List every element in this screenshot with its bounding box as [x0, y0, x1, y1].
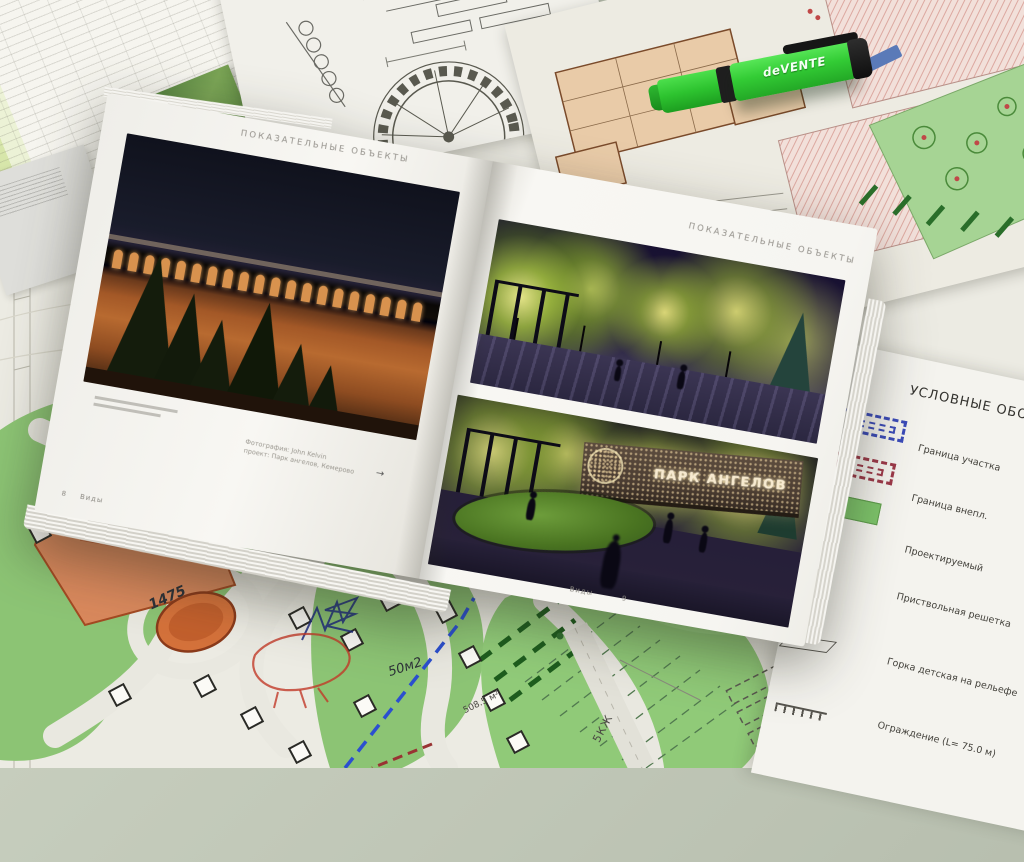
gutter-caption: Фотография: John Kelvin проект: Парк анг… — [243, 438, 357, 477]
left-page-footer-label: Виды — [79, 493, 104, 505]
legend-item-label: Граница участка — [917, 443, 1002, 474]
legend-item-label: Ограждение (L= 75.0 м) — [876, 720, 997, 760]
legend-symbol-fence — [774, 702, 827, 722]
legend-item-label: Граница внепл. — [910, 493, 989, 523]
sign-emblem — [586, 447, 625, 486]
legend-item-label: Проектируемый — [903, 544, 984, 574]
marker-cap — [657, 69, 724, 114]
left-page-number: 8 — [61, 489, 68, 498]
legend-item-label: Приствольная решетка — [895, 591, 1012, 630]
note-sheet-text-lines — [0, 167, 69, 220]
park-sign-text: ПАРК АНГЕЛОВ — [654, 468, 788, 495]
legend-item-label: Горка детская на рельефе — [886, 656, 1019, 699]
left-page-footer: 8 Виды — [61, 489, 104, 504]
legend-title: УСЛОВНЫЕ ОБОЗНАЧЕНИЯ — [908, 383, 1024, 440]
left-margin-caption — [93, 396, 177, 420]
caption-arrow: → — [375, 468, 385, 480]
right-page-number: 9 — [621, 594, 628, 603]
stadium-photo — [83, 133, 460, 440]
